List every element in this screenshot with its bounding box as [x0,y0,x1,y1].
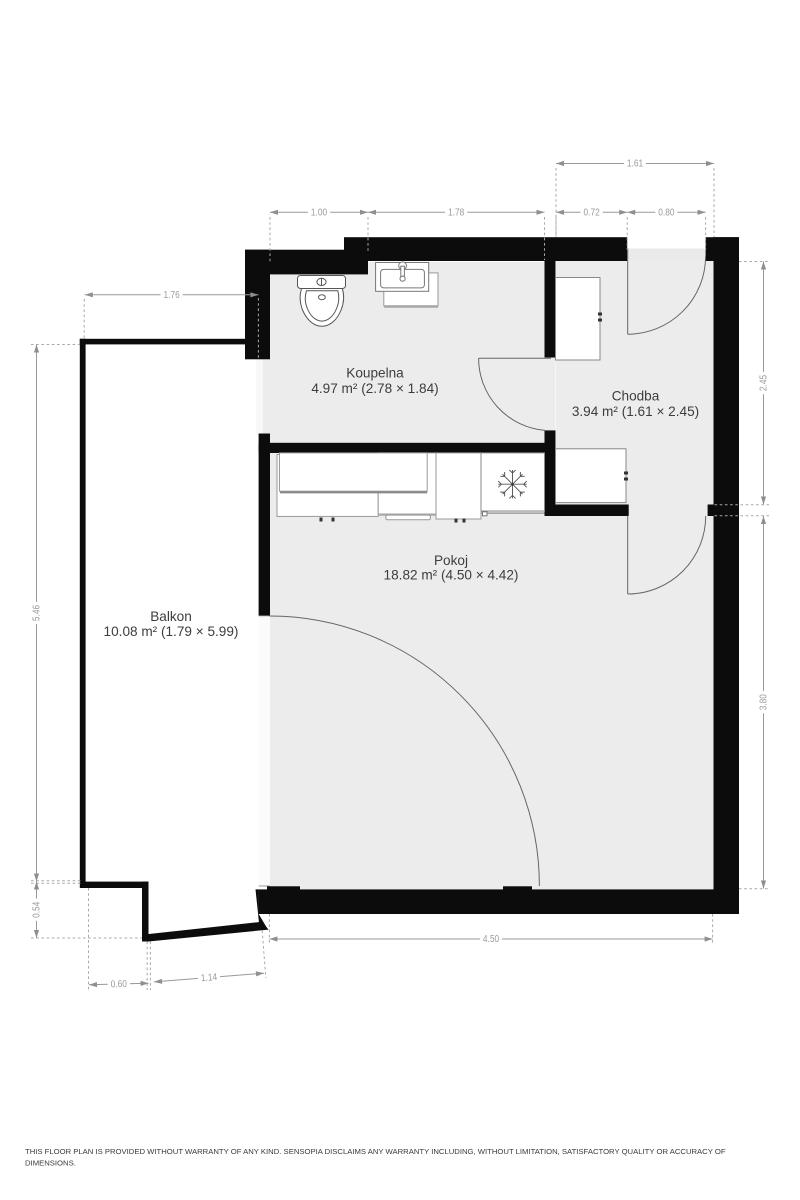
svg-text:THIS FLOOR PLAN IS PROVIDED WI: THIS FLOOR PLAN IS PROVIDED WITHOUT WARR… [25,1147,726,1156]
svg-text:4.50: 4.50 [483,934,500,945]
svg-text:Pokoj: Pokoj [434,553,468,568]
svg-text:DIMENSIONS.: DIMENSIONS. [25,1158,76,1167]
svg-text:1.14: 1.14 [201,972,218,984]
svg-text:0.72: 0.72 [584,207,601,218]
svg-text:1.00: 1.00 [311,207,328,218]
svg-text:1.61: 1.61 [627,159,644,170]
svg-text:0.80: 0.80 [658,207,675,218]
svg-text:5.46: 5.46 [32,605,43,622]
svg-text:Chodba: Chodba [612,389,660,404]
svg-text:18.82 m² (4.50 × 4.42): 18.82 m² (4.50 × 4.42) [384,568,519,583]
svg-text:3.80: 3.80 [759,694,770,711]
svg-text:10.08 m² (1.79 × 5.99): 10.08 m² (1.79 × 5.99) [104,624,239,639]
svg-text:Koupelna: Koupelna [346,366,404,381]
svg-text:Balkon: Balkon [150,609,192,624]
svg-text:1.78: 1.78 [448,207,465,218]
svg-text:3.94 m² (1.61 × 2.45): 3.94 m² (1.61 × 2.45) [572,404,699,419]
svg-text:4.97 m² (2.78 × 1.84): 4.97 m² (2.78 × 1.84) [311,381,438,396]
svg-text:0.54: 0.54 [32,901,43,918]
svg-text:1.76: 1.76 [164,290,181,301]
svg-text:2.45: 2.45 [759,375,770,392]
svg-text:0.60: 0.60 [111,979,128,990]
